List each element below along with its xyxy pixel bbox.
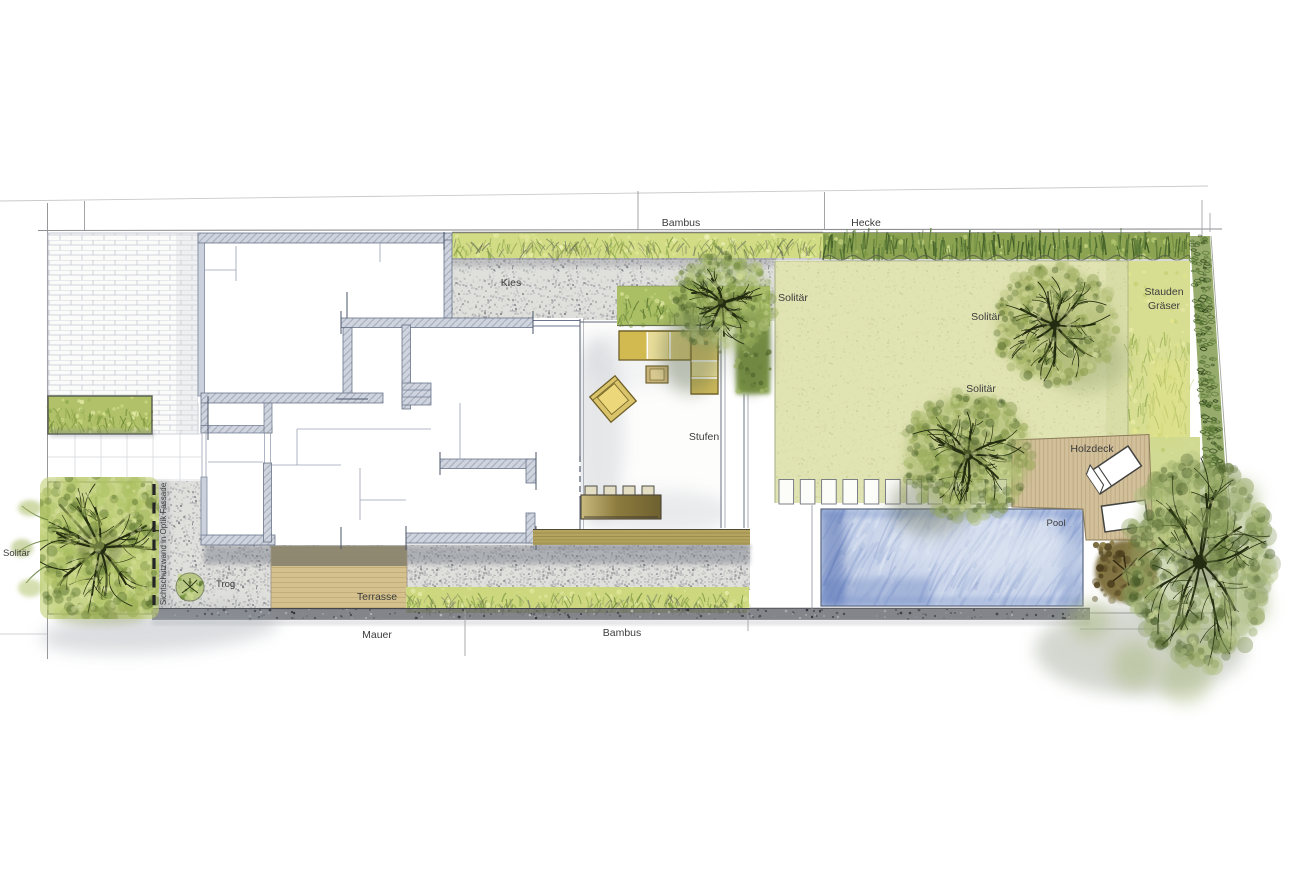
svg-text:Terrasse: Terrasse — [357, 591, 397, 603]
svg-text:Solitär: Solitär — [3, 548, 30, 559]
svg-text:Pool: Pool — [1046, 518, 1065, 529]
svg-text:Kies: Kies — [501, 277, 521, 289]
svg-text:Hecke: Hecke — [851, 217, 881, 229]
svg-text:Mauer: Mauer — [362, 629, 392, 641]
svg-text:Solitär: Solitär — [778, 292, 808, 304]
svg-text:Solitär: Solitär — [971, 311, 1001, 323]
svg-text:Stauden: Stauden — [1144, 286, 1183, 298]
svg-text:Bambus: Bambus — [603, 627, 642, 639]
svg-text:Holzdeck: Holzdeck — [1070, 443, 1114, 455]
svg-text:Sichtschutzwand in Optik Fassa: Sichtschutzwand in Optik Fassade — [159, 482, 168, 605]
svg-text:Bambus: Bambus — [662, 217, 701, 229]
svg-text:Trog: Trog — [216, 579, 235, 590]
svg-text:Gräser: Gräser — [1148, 300, 1181, 312]
svg-text:Solitär: Solitär — [966, 383, 996, 395]
svg-text:Stufen: Stufen — [689, 431, 720, 443]
